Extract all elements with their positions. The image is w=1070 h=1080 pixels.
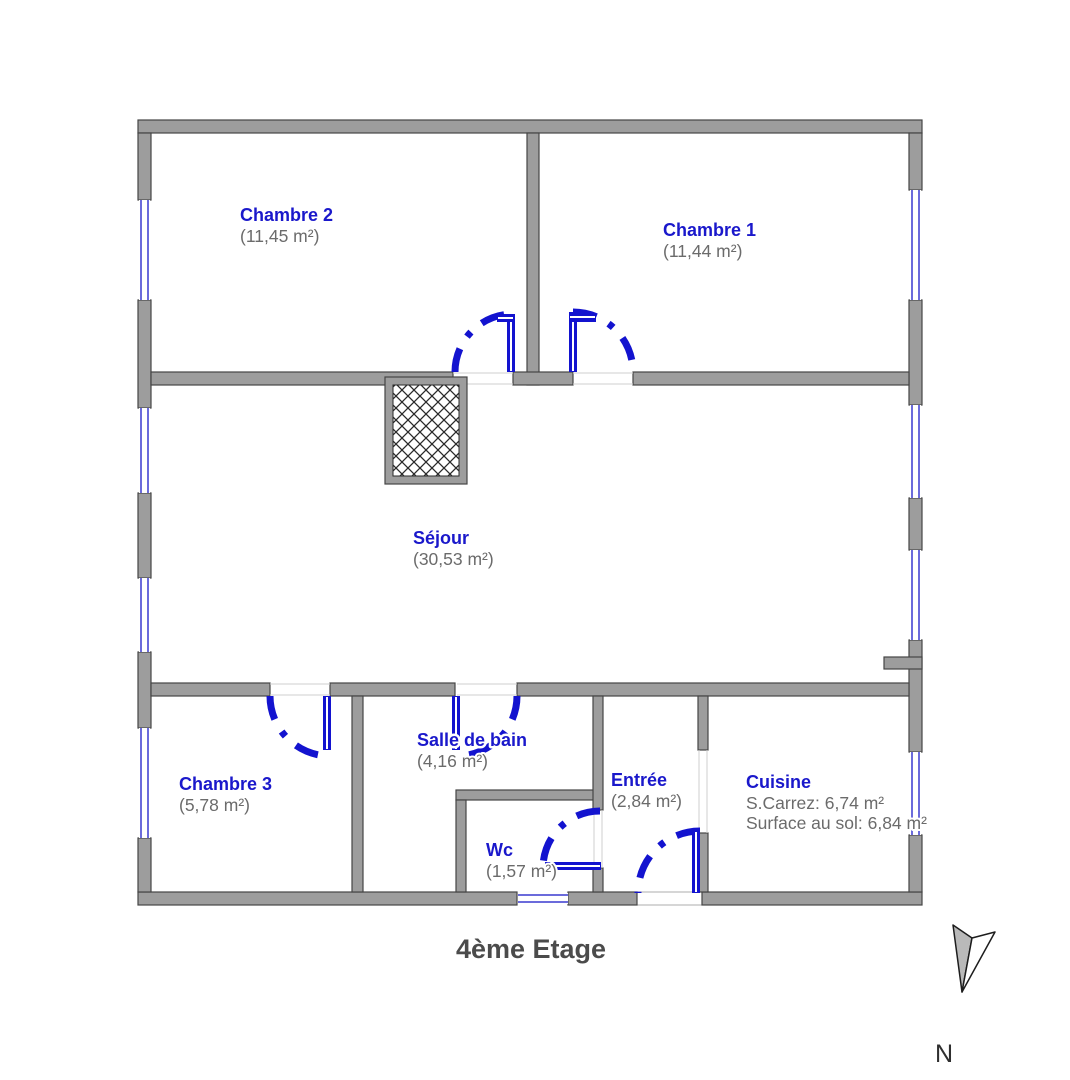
wall-segment [138,493,151,578]
wall-segment [702,892,922,905]
wall-segment [527,133,539,385]
wall-segment [138,838,151,892]
window-pane-line [147,408,149,493]
wall-segment [593,868,603,892]
wall-segment [456,800,466,892]
wall-segment [909,498,922,550]
window-pane-line [140,200,142,300]
wall-segment [909,835,922,892]
door-leaf-core [498,317,513,319]
wall-segment [138,300,151,408]
door-leaf-core [326,697,328,749]
room-area-label: (11,45 m²) [240,226,319,246]
wall-segment [138,120,922,133]
wall-segment [330,683,455,696]
wall-segment [698,696,708,750]
door-swing-arc [638,831,700,893]
door-swing-arc [543,811,600,868]
window-pane-line [147,728,149,838]
wall-segment [909,300,922,405]
window-pane-line [918,405,920,498]
window-pane-line [518,894,568,896]
room-label: Cuisine [746,772,811,792]
wall-segment [568,892,637,905]
window-pane-line [140,728,142,838]
window-pane-line [147,578,149,652]
room-label: Chambre 1 [663,220,756,240]
door-leaf-core [570,316,595,318]
wall-segment [593,696,603,810]
wall-segment [456,790,597,800]
window-pane-line [140,408,142,493]
wall-segment [138,652,151,728]
window-pane-line [918,190,920,300]
plan-geometry: Chambre 2(11,45 m²)Chambre 1(11,44 m²)Sé… [138,120,995,992]
room-area-label: (11,44 m²) [663,241,742,261]
wall-segment [884,657,922,669]
room-area-label: (5,78 m²) [179,795,250,815]
floor-plan-svg: Chambre 2(11,45 m²)Chambre 1(11,44 m²)Sé… [0,0,1070,1080]
window-pane-line [518,901,568,903]
door-leaf-core [695,832,697,892]
wall-segment [909,133,922,190]
room-label: Chambre 2 [240,205,333,225]
wall-segment [138,133,151,200]
wall-segment [151,683,270,696]
room-label: Salle de bain [417,730,527,750]
room-area-label: (30,53 m²) [413,549,494,569]
room-label: Entrée [611,770,667,790]
window-pane-line [140,578,142,652]
room-area-label: (2,84 m²) [611,791,682,811]
window-pane-line [911,550,913,640]
wall-segment [513,372,573,385]
room-area-label: Surface au sol: 6,84 m² [746,813,927,833]
door-swing-arc [270,696,330,756]
wall-segment [352,696,363,892]
room-label: Wc [486,840,513,860]
window-pane-line [147,200,149,300]
wall-segment [633,372,909,385]
room-area-label: (1,57 m²) [486,861,557,881]
window-pane-line [918,550,920,640]
room-area-label: S.Carrez: 6,74 m² [746,793,884,813]
floor-plan-page: Chambre 2(11,45 m²)Chambre 1(11,44 m²)Sé… [0,0,1070,1080]
room-label: Chambre 3 [179,774,272,794]
door-swing-arc [455,314,513,372]
window-pane-line [911,405,913,498]
shaft-hatch [393,385,459,476]
wall-segment [138,892,517,905]
room-area-label: (4,16 m²) [417,751,488,771]
door-leaf-core [510,315,512,371]
entrance-door-opening [637,892,702,905]
room-label: Séjour [413,528,469,548]
wall-segment [517,683,909,696]
window-pane-line [911,190,913,300]
north-label: N [935,1040,953,1068]
floor-title: 4ème Etage [456,934,606,964]
